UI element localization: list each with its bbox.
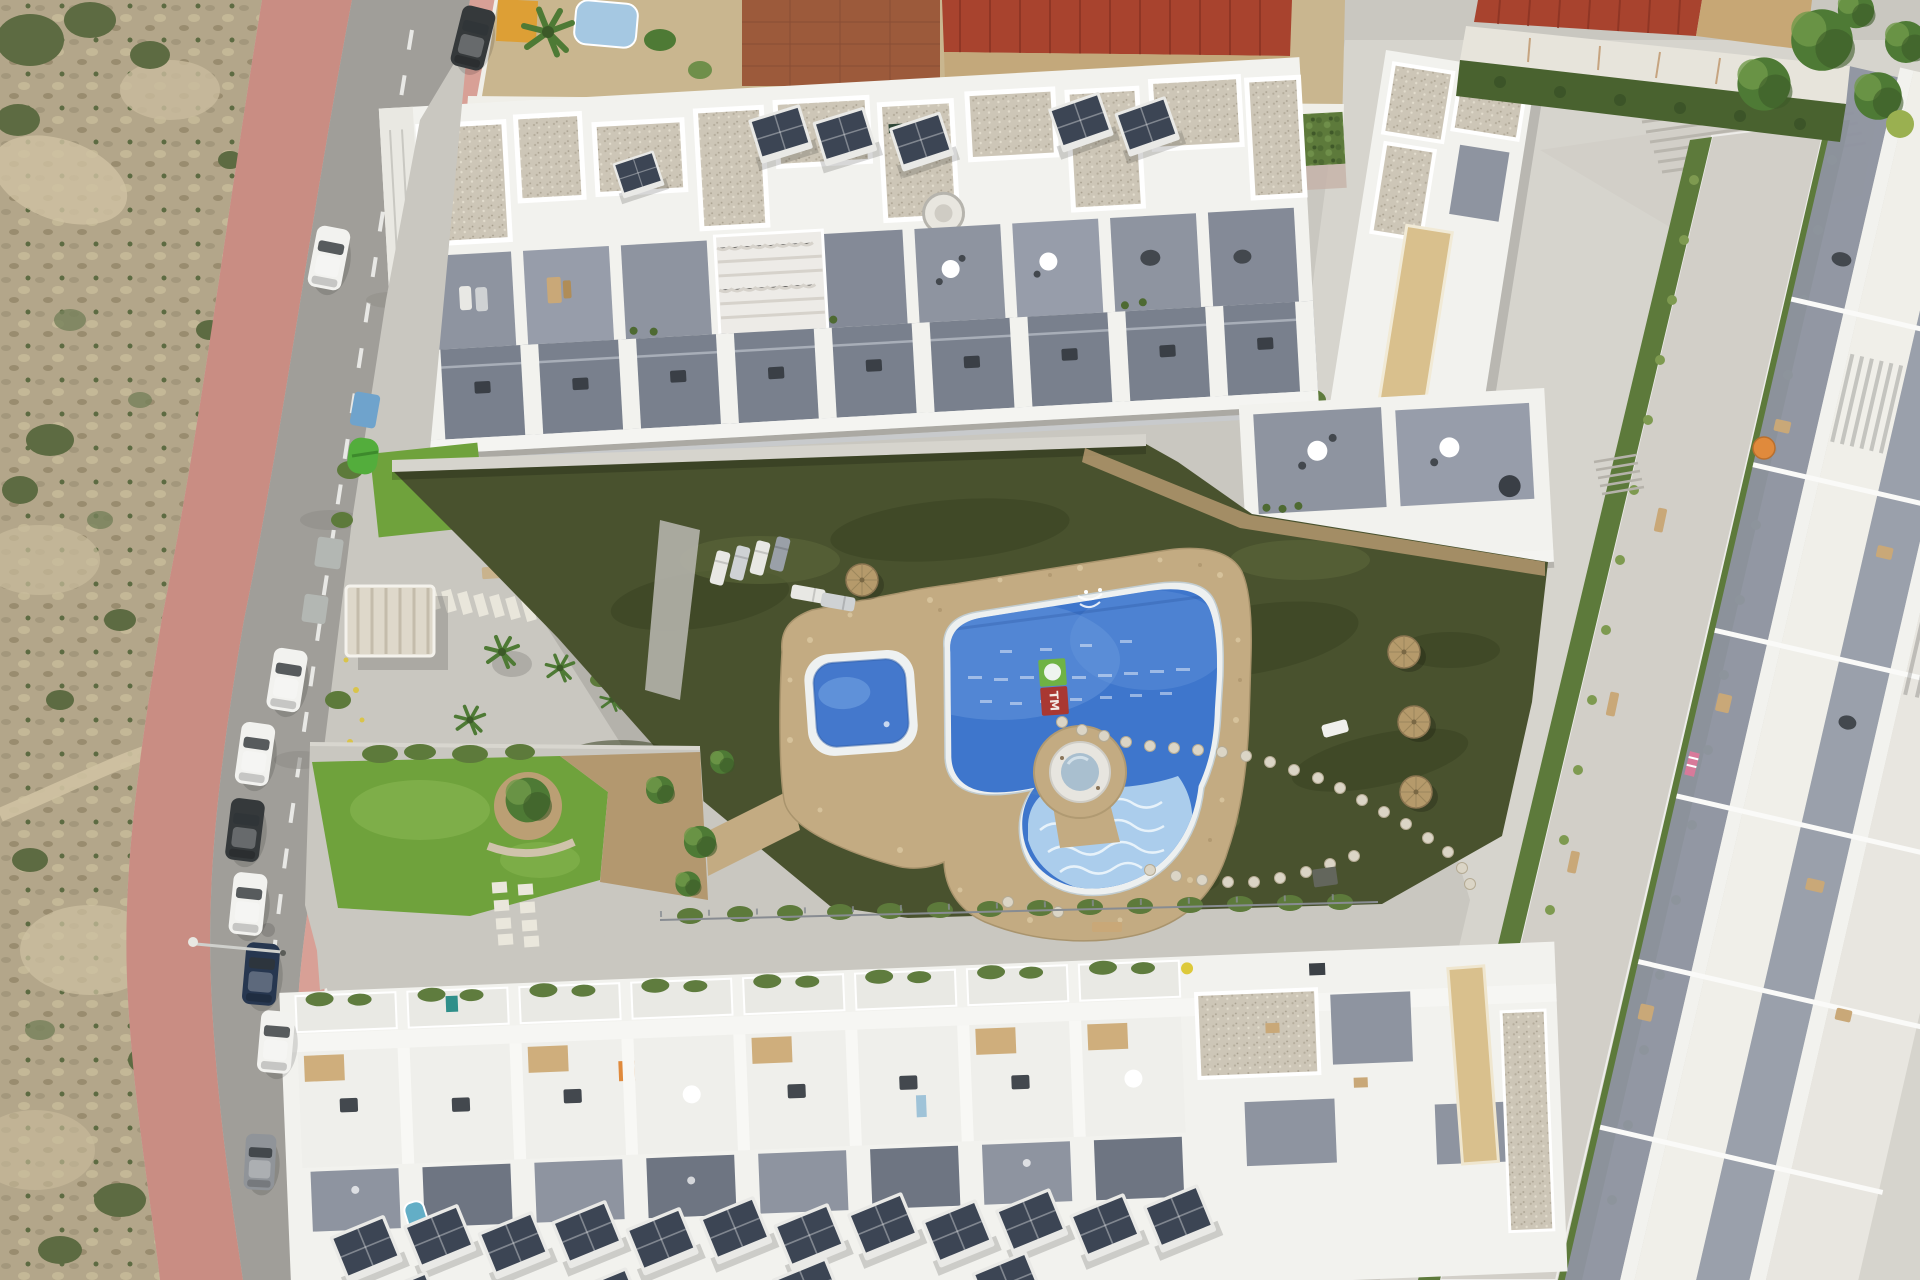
south-apartment-rows [279,942,1569,1280]
orange-parasol [1753,437,1775,459]
aerial-photo: TM [0,0,1920,1280]
garden-shed [1312,866,1338,887]
float-label: TM [1046,690,1061,711]
teal-box [446,996,459,1012]
red-tile-roof [942,0,1292,56]
gray-container [314,536,344,569]
yellow-wall [496,0,538,43]
gray-container [301,593,329,624]
scene-canvas: TM [0,0,1920,1280]
pergola [346,586,448,670]
covered-car [573,0,639,49]
terracotta-patio [742,0,940,86]
kids-pool [803,648,920,757]
deck-bench [1092,922,1122,932]
